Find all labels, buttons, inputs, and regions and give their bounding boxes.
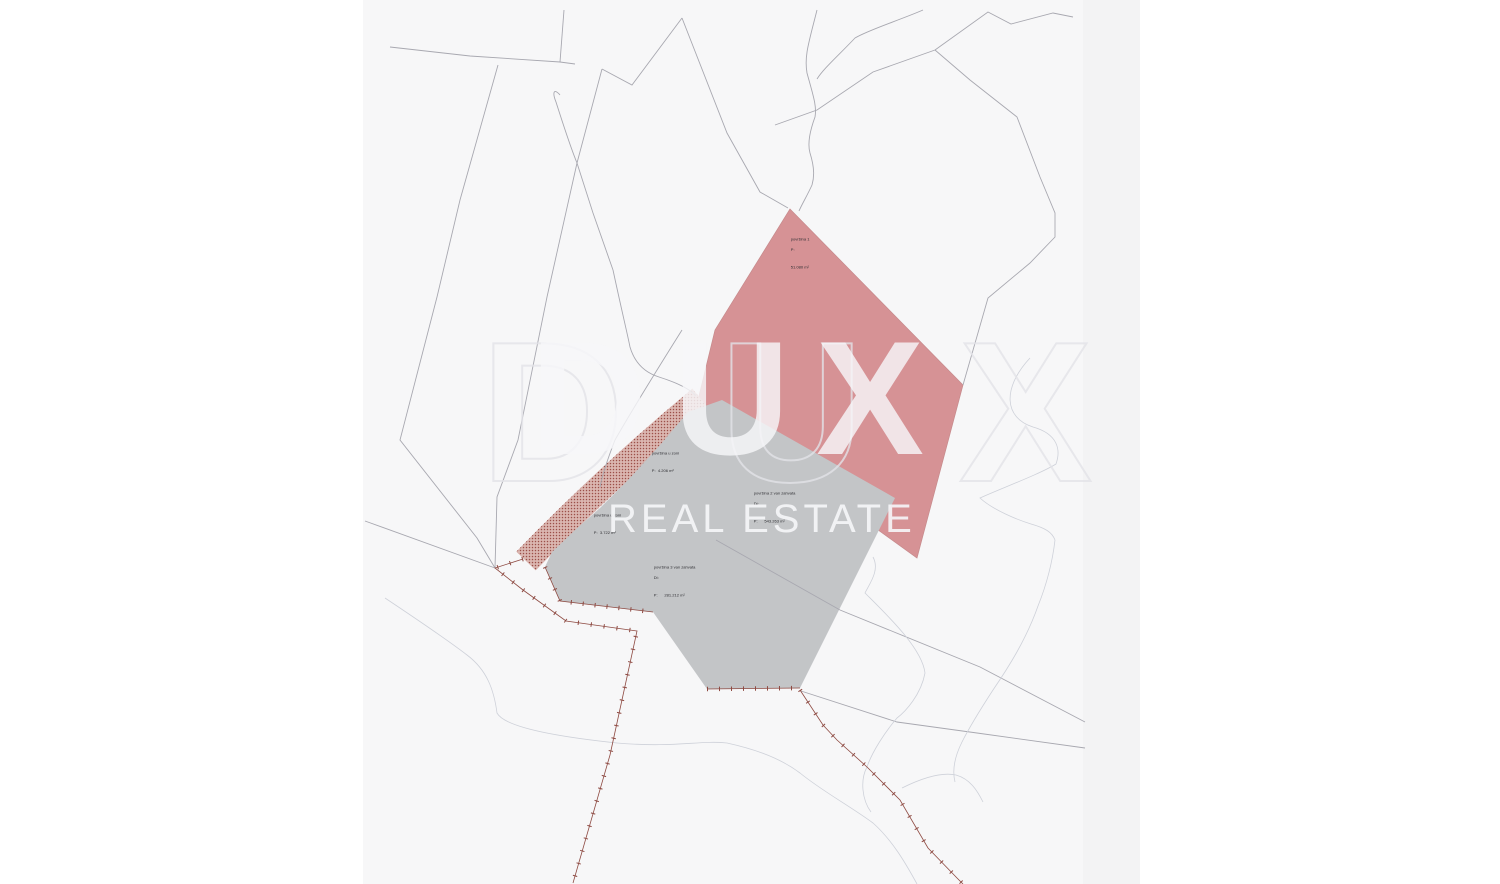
cadastral-ticks-southeast	[800, 690, 963, 884]
area-label-line: P: 4.206 m²	[652, 469, 674, 474]
area-label-line: P: 281.212 m²	[654, 593, 685, 598]
area-label-line: Di:	[754, 501, 759, 506]
area-label-line: Di:	[654, 575, 659, 580]
cadastral-line-southeast	[800, 690, 963, 884]
cadastral-plan-sheet: površina 1 P: 51.080 m² površina 2 van z…	[363, 0, 1140, 884]
area-label-line: površina 1	[791, 237, 810, 242]
area-label-parcel-1: površina 1 P: 51.080 m²	[784, 232, 809, 275]
area-label-line: P:	[791, 247, 795, 252]
area-label-line: površina u zoni	[652, 451, 679, 456]
cadastral-plan-drawing	[363, 0, 1140, 884]
area-label-parcel-3: površina 3 van zahvata Di: P: 281.212 m²	[647, 560, 695, 603]
area-label-line: površina u zoni	[594, 513, 621, 518]
sheet-edge-strip	[1083, 0, 1140, 884]
area-label-line: P: 543.263 m²	[754, 519, 785, 524]
area-label-line: P: 3.722 m²	[594, 531, 616, 536]
area-label-zone-lower: površina u zoni P: 3.722 m²	[587, 508, 621, 541]
area-label-zone-upper: površina u zoni P: 4.206 m²	[645, 446, 679, 479]
area-label-parcel-2: površina 2 van zahvata Di: P: 543.263 m²	[747, 486, 795, 529]
area-label-line: površina 2 van zahvata	[754, 491, 796, 496]
area-label-line: površina 3 van zahvata	[654, 565, 696, 570]
area-label-line: 51.080 m²	[791, 265, 809, 270]
